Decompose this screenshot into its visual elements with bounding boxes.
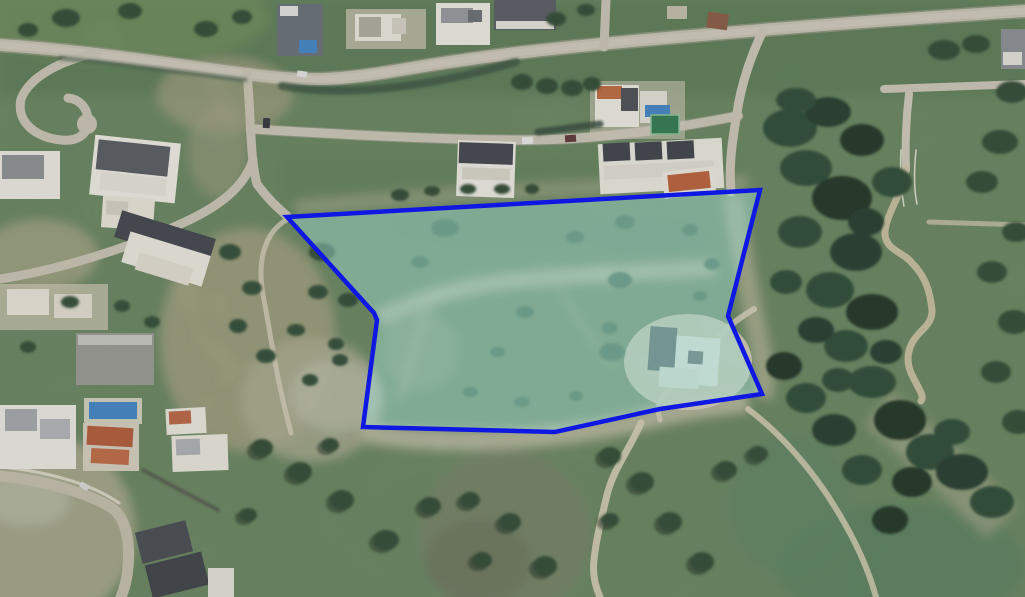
- satellite-map: [0, 0, 1025, 597]
- satellite-image: [0, 0, 1025, 597]
